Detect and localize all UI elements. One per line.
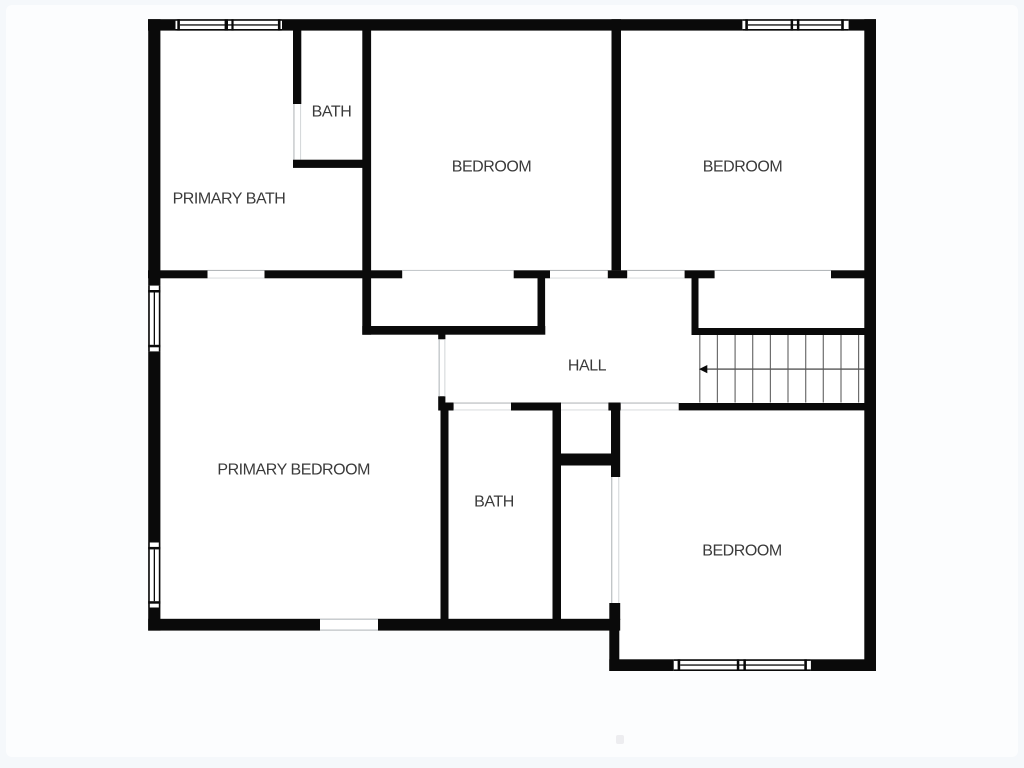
svg-text:BEDROOM: BEDROOM [452, 159, 532, 176]
svg-text:HALL: HALL [568, 358, 607, 375]
svg-text:BEDROOM: BEDROOM [702, 543, 782, 560]
svg-text:PRIMARY BEDROOM: PRIMARY BEDROOM [217, 462, 370, 479]
svg-text:BEDROOM: BEDROOM [703, 159, 783, 176]
svg-text:PRIMARY BATH: PRIMARY BATH [173, 191, 286, 208]
svg-text:BATH: BATH [312, 104, 352, 121]
svg-text:BATH: BATH [474, 494, 514, 511]
